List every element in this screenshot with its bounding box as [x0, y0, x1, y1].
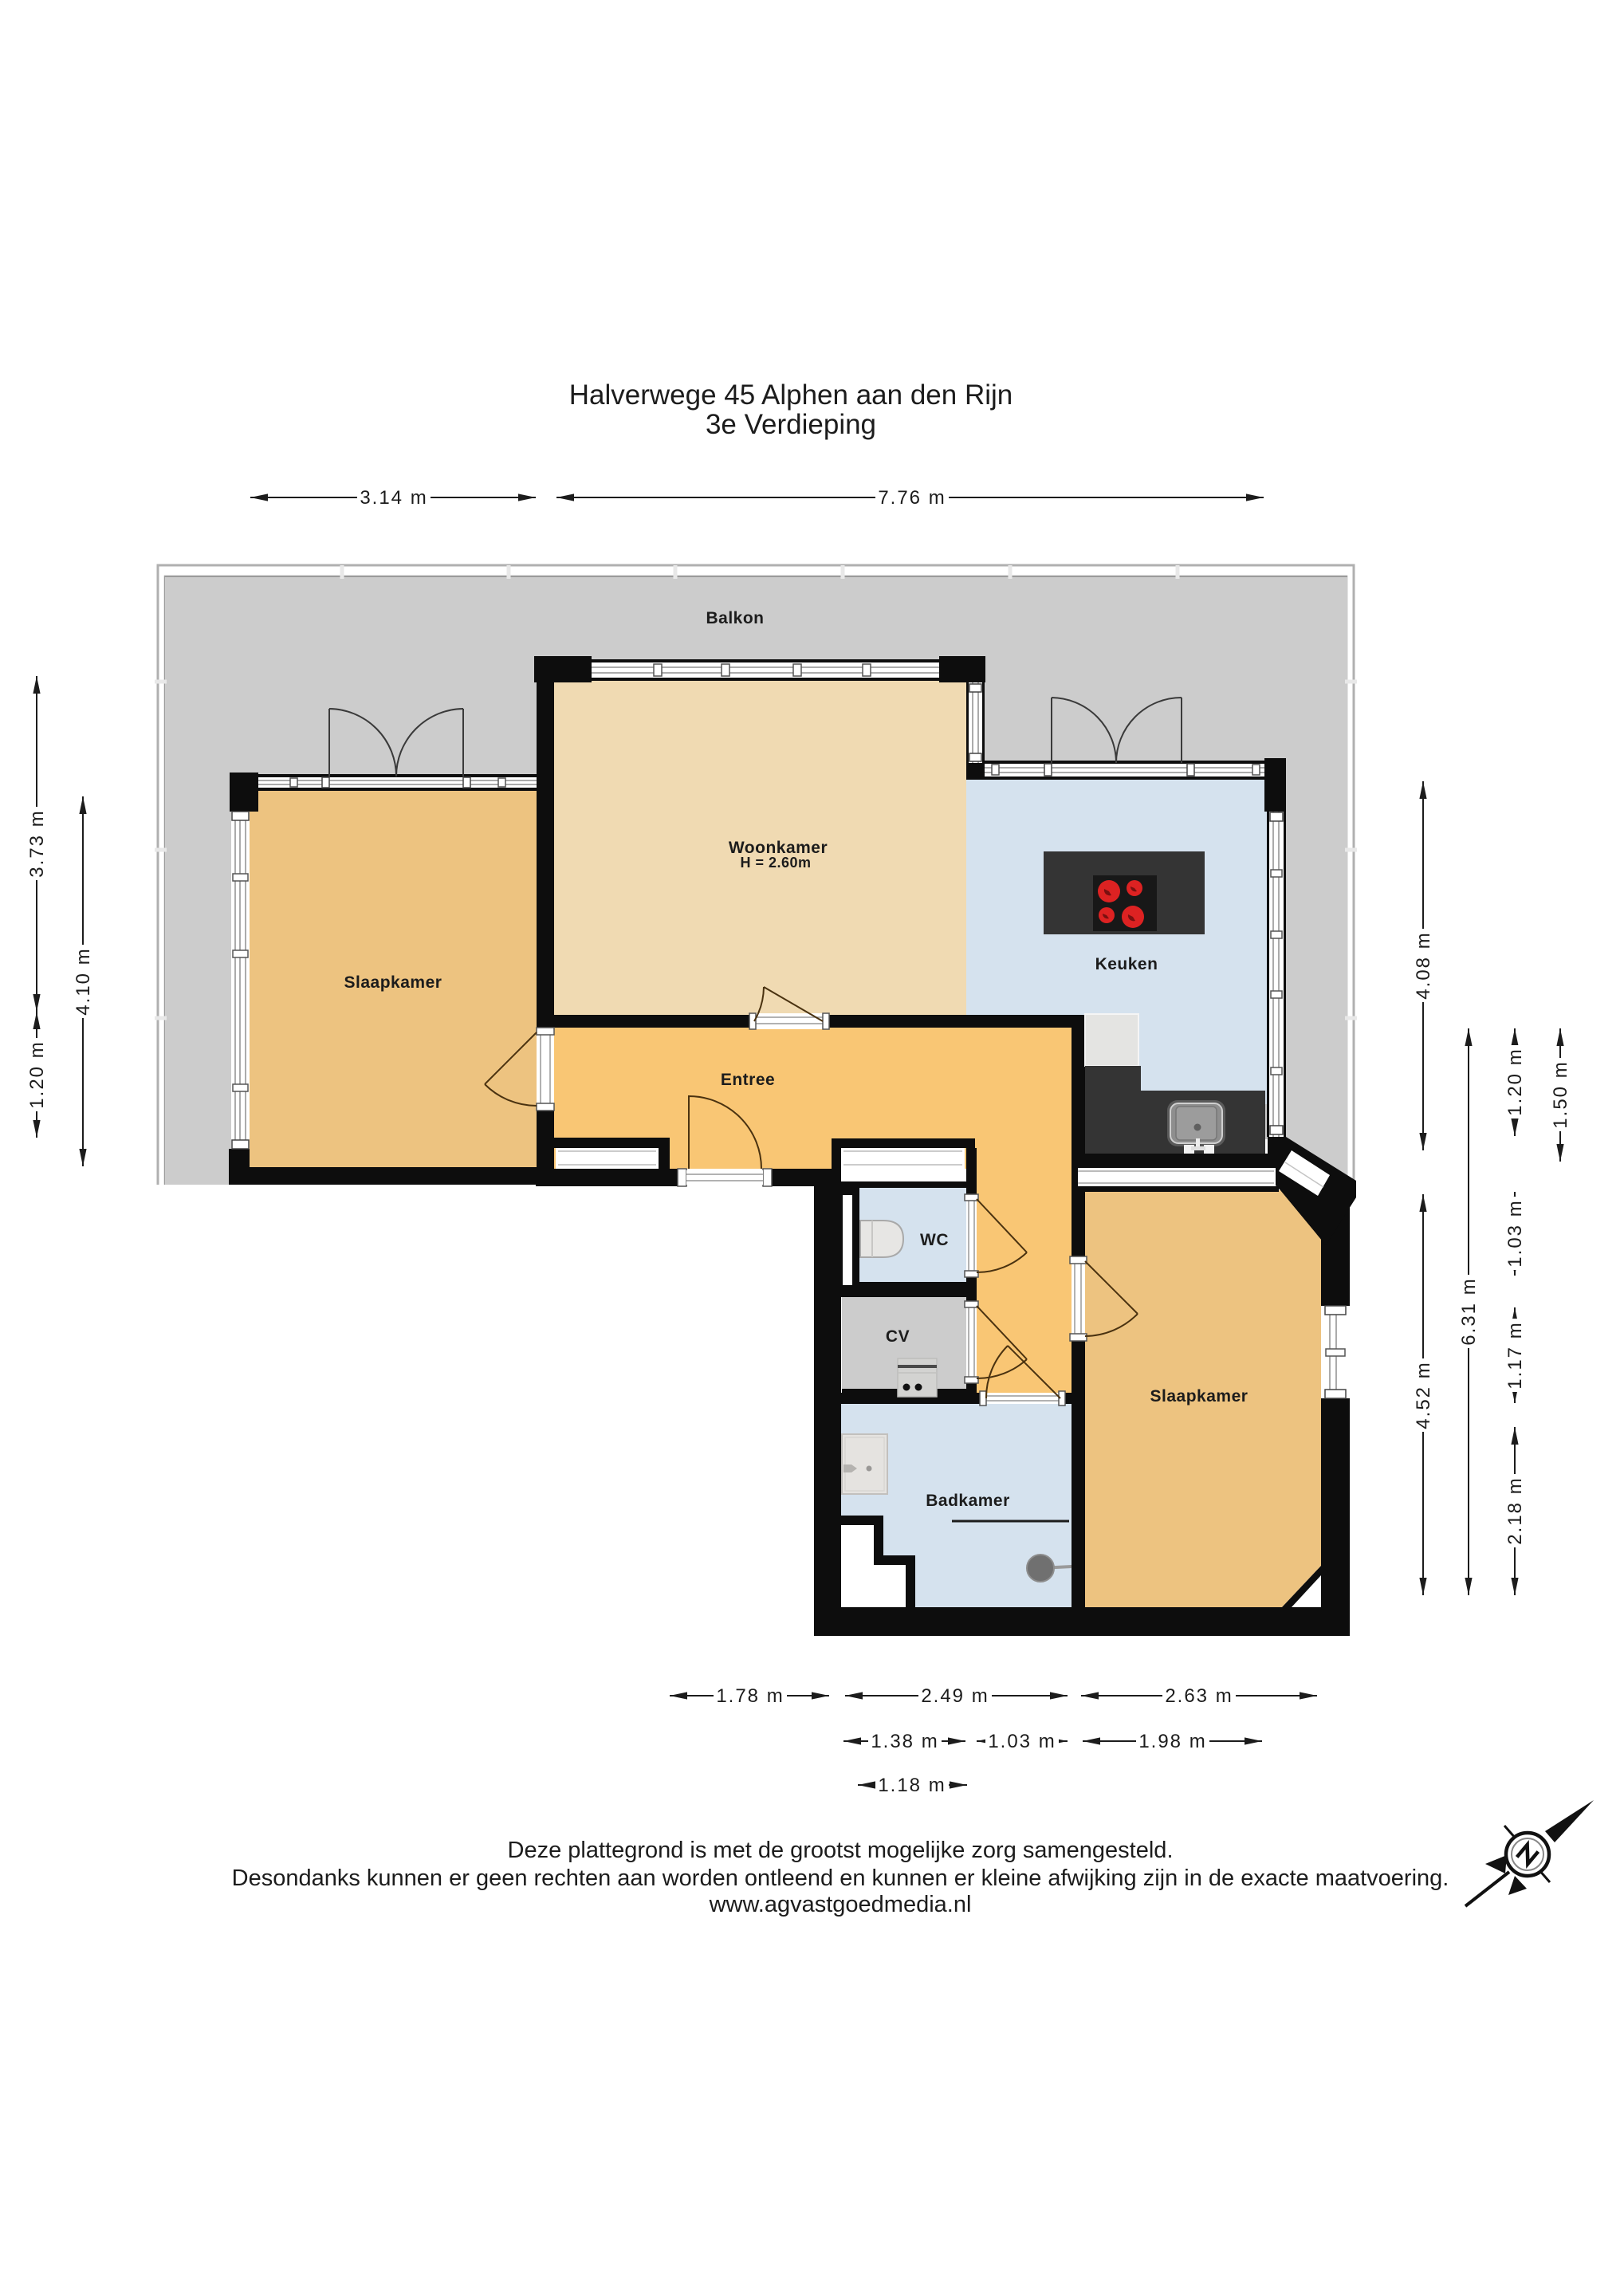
svg-text:Keuken: Keuken	[1095, 955, 1158, 973]
svg-text:4.10 m: 4.10 m	[73, 947, 94, 1015]
svg-text:Desondanks kunnen er geen rech: Desondanks kunnen er geen rechten aan wo…	[232, 1866, 1449, 1891]
svg-text:www.agvastgoedmedia.nl: www.agvastgoedmedia.nl	[709, 1892, 972, 1917]
svg-text:7.76 m: 7.76 m	[878, 487, 946, 509]
svg-text:2.49 m: 2.49 m	[921, 1685, 989, 1707]
svg-text:1.20 m: 1.20 m	[26, 1040, 48, 1108]
svg-text:2.18 m: 2.18 m	[1504, 1476, 1526, 1544]
svg-text:Badkamer: Badkamer	[926, 1492, 1010, 1510]
svg-text:1.20 m: 1.20 m	[1504, 1048, 1526, 1115]
svg-text:Balkon: Balkon	[706, 609, 764, 627]
svg-text:6.31 m: 6.31 m	[1458, 1277, 1480, 1345]
svg-text:H = 2.60m: H = 2.60m	[740, 855, 811, 871]
svg-text:1.78 m: 1.78 m	[716, 1685, 784, 1707]
svg-text:1.17 m: 1.17 m	[1504, 1321, 1526, 1389]
svg-text:1.03 m: 1.03 m	[988, 1731, 1056, 1752]
svg-text:Slaapkamer: Slaapkamer	[1150, 1387, 1248, 1406]
svg-text:CV: CV	[886, 1327, 910, 1346]
svg-text:1.98 m: 1.98 m	[1138, 1731, 1206, 1752]
svg-text:1.03 m: 1.03 m	[1504, 1199, 1526, 1267]
svg-text:Slaapkamer: Slaapkamer	[344, 973, 442, 992]
svg-text:Halverwege 45 Alphen aan den R: Halverwege 45 Alphen aan den Rijn	[569, 379, 1013, 411]
svg-text:2.63 m: 2.63 m	[1165, 1685, 1233, 1707]
svg-text:4.08 m: 4.08 m	[1413, 931, 1434, 999]
svg-text:1.18 m: 1.18 m	[878, 1775, 946, 1796]
svg-text:1.50 m: 1.50 m	[1550, 1060, 1571, 1128]
svg-text:Deze plattegrond is met de gro: Deze plattegrond is met de grootst mogel…	[508, 1838, 1174, 1863]
svg-text:3.73 m: 3.73 m	[26, 809, 48, 877]
svg-text:1.38 m: 1.38 m	[871, 1731, 938, 1752]
svg-text:3.14 m: 3.14 m	[360, 487, 427, 509]
svg-text:Entree: Entree	[721, 1071, 775, 1089]
svg-text:3e Verdieping: 3e Verdieping	[706, 409, 876, 440]
svg-text:WC: WC	[920, 1231, 949, 1249]
svg-text:4.52 m: 4.52 m	[1413, 1361, 1434, 1429]
